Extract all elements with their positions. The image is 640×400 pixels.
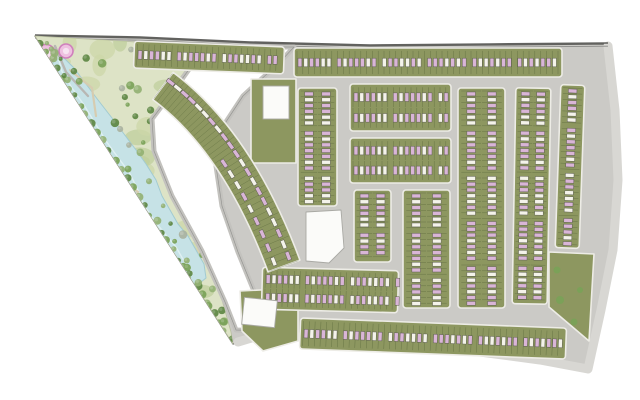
housing-block-v-block-4 — [512, 88, 551, 305]
housing-block-right-strip — [555, 85, 585, 249]
housing-block-center-block-2 — [350, 138, 451, 183]
housing-block-v-block-2 — [403, 190, 450, 308]
master-plan-svg — [0, 0, 640, 400]
housing-block-center-block-1 — [350, 84, 451, 131]
housing-block-top-strip-b — [294, 48, 562, 77]
housing-block-narrow-block — [298, 88, 337, 206]
housing-block-v-block-1 — [354, 190, 391, 262]
housing-block-v-block-3 — [458, 88, 505, 308]
white-building-north — [263, 86, 289, 119]
housing-block-top-strip-a — [134, 41, 285, 74]
site-plan — [0, 0, 640, 400]
housing-block-bottom-block — [261, 267, 399, 313]
white-building-southwest — [242, 297, 278, 327]
